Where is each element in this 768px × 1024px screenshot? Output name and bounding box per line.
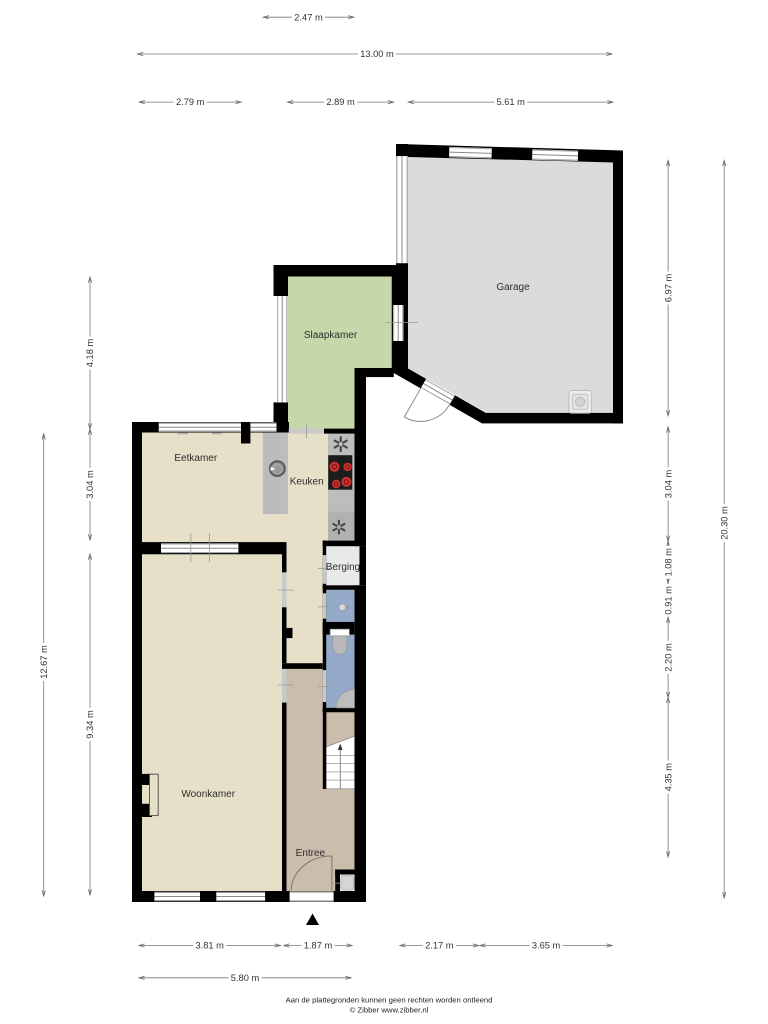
svg-text:Garage: Garage bbox=[496, 282, 530, 293]
svg-text:4.18 m: 4.18 m bbox=[85, 339, 95, 368]
svg-text:2.17 m: 2.17 m bbox=[425, 941, 454, 951]
svg-text:9.34 m: 9.34 m bbox=[85, 710, 95, 739]
svg-text:3.04 m: 3.04 m bbox=[663, 470, 673, 499]
svg-text:Aan de plattegronden kunnen ge: Aan de plattegronden kunnen geen rechten… bbox=[286, 996, 493, 1005]
svg-text:4.35 m: 4.35 m bbox=[663, 763, 673, 792]
svg-text:3.04 m: 3.04 m bbox=[85, 470, 95, 499]
svg-text:6.97 m: 6.97 m bbox=[663, 274, 673, 303]
svg-text:2.89 m: 2.89 m bbox=[326, 97, 355, 107]
svg-text:2.20 m: 2.20 m bbox=[663, 643, 673, 672]
svg-text:Slaapkamer: Slaapkamer bbox=[304, 330, 358, 341]
svg-text:3.81 m: 3.81 m bbox=[195, 941, 224, 951]
svg-text:2.47 m: 2.47 m bbox=[294, 12, 323, 22]
svg-text:1.87 m: 1.87 m bbox=[304, 941, 333, 951]
svg-text:13.00 m: 13.00 m bbox=[360, 49, 394, 59]
svg-text:Berging: Berging bbox=[326, 562, 360, 573]
svg-text:Keuken: Keuken bbox=[290, 477, 324, 488]
svg-text:2.79 m: 2.79 m bbox=[176, 97, 205, 107]
svg-text:12.67 m: 12.67 m bbox=[39, 645, 49, 679]
svg-text:5.80 m: 5.80 m bbox=[231, 973, 260, 983]
svg-text:1.08 m: 1.08 m bbox=[663, 548, 673, 577]
svg-text:Eetkamer: Eetkamer bbox=[174, 453, 217, 464]
svg-text:0.91 m: 0.91 m bbox=[663, 586, 673, 615]
svg-text:20.30 m: 20.30 m bbox=[719, 506, 729, 540]
svg-text:Entree: Entree bbox=[296, 848, 326, 859]
svg-text:© Zibber www.zibber.nl: © Zibber www.zibber.nl bbox=[350, 1006, 429, 1015]
svg-text:Woonkamer: Woonkamer bbox=[181, 789, 235, 800]
svg-text:3.65 m: 3.65 m bbox=[532, 941, 561, 951]
svg-text:5.61 m: 5.61 m bbox=[496, 97, 525, 107]
